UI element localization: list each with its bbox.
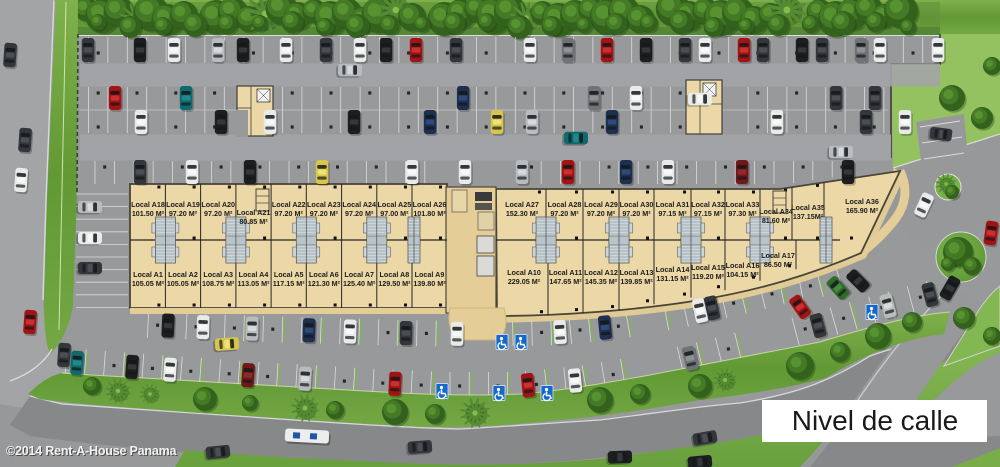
svg-text:Local A27: Local A27 <box>505 200 539 209</box>
svg-text:105.05 M²: 105.05 M² <box>167 279 200 288</box>
svg-text:229.05 M²: 229.05 M² <box>508 277 541 286</box>
svg-text:Nivel de calle: Nivel de calle <box>792 405 959 436</box>
svg-text:Local A32: Local A32 <box>691 200 725 209</box>
svg-text:137.15M²: 137.15M² <box>793 212 824 221</box>
svg-text:121.30 M²: 121.30 M² <box>308 279 341 288</box>
svg-text:97.20 M²: 97.20 M² <box>587 209 616 218</box>
svg-text:Local A28: Local A28 <box>548 200 582 209</box>
svg-text:Local A24: Local A24 <box>342 200 376 209</box>
svg-text:97.20 M²: 97.20 M² <box>550 209 579 218</box>
svg-text:97.20 M²: 97.20 M² <box>622 209 651 218</box>
svg-text:97.20 M²: 97.20 M² <box>345 209 374 218</box>
svg-text:165.90 M²: 165.90 M² <box>846 206 879 215</box>
svg-text:97.15 M²: 97.15 M² <box>694 209 723 218</box>
svg-text:97.30 M²: 97.30 M² <box>728 209 757 218</box>
svg-text:97.15 M²: 97.15 M² <box>658 209 687 218</box>
svg-text:113.05 M²: 113.05 M² <box>238 279 271 288</box>
svg-text:81.60 M²: 81.60 M² <box>762 216 791 225</box>
svg-text:125.40 M²: 125.40 M² <box>343 279 376 288</box>
svg-text:80.85 M²: 80.85 M² <box>239 217 268 226</box>
svg-text:Local A7: Local A7 <box>344 270 374 279</box>
svg-text:117.15 M²: 117.15 M² <box>273 279 306 288</box>
svg-text:Local A20: Local A20 <box>201 200 235 209</box>
svg-text:Local A4: Local A4 <box>239 270 269 279</box>
svg-text:Local A17: Local A17 <box>761 251 795 260</box>
svg-text:Local A35: Local A35 <box>791 203 825 212</box>
svg-text:Local A23: Local A23 <box>307 200 341 209</box>
svg-text:Local A11: Local A11 <box>549 268 582 277</box>
svg-text:Local A3: Local A3 <box>203 270 233 279</box>
svg-text:Local A14: Local A14 <box>656 265 690 274</box>
svg-text:Local A31: Local A31 <box>656 200 690 209</box>
svg-text:101.50 M²: 101.50 M² <box>132 209 165 218</box>
svg-text:Local A19: Local A19 <box>166 200 200 209</box>
svg-text:Local A16: Local A16 <box>726 261 760 270</box>
svg-text:119.20 M²: 119.20 M² <box>692 272 725 281</box>
svg-text:147.65 M²: 147.65 M² <box>549 277 582 286</box>
svg-text:Local A5: Local A5 <box>274 270 304 279</box>
svg-text:Local A21: Local A21 <box>237 208 271 217</box>
svg-text:97.00 M²: 97.00 M² <box>380 209 409 218</box>
svg-text:Local A22: Local A22 <box>272 200 306 209</box>
svg-text:Local A6: Local A6 <box>309 270 339 279</box>
svg-text:Local A33: Local A33 <box>726 200 760 209</box>
svg-text:Local A36: Local A36 <box>845 197 879 206</box>
svg-text:Local A13: Local A13 <box>620 268 654 277</box>
svg-text:Local A30: Local A30 <box>620 200 654 209</box>
svg-text:108.75 M²: 108.75 M² <box>202 279 235 288</box>
svg-text:97.20 M²: 97.20 M² <box>204 209 233 218</box>
svg-text:86.50 M²: 86.50 M² <box>764 260 793 269</box>
svg-text:Local A2: Local A2 <box>168 270 198 279</box>
svg-text:Local A10: Local A10 <box>507 268 541 277</box>
svg-text:Local A25: Local A25 <box>378 200 412 209</box>
svg-text:97.20 M²: 97.20 M² <box>310 209 339 218</box>
svg-text:Local A1: Local A1 <box>133 270 163 279</box>
svg-text:104.15 M²: 104.15 M² <box>726 270 759 279</box>
svg-text:129.50 M²: 129.50 M² <box>378 279 411 288</box>
svg-text:Local A15: Local A15 <box>691 263 725 272</box>
svg-text:Local A9: Local A9 <box>415 270 445 279</box>
svg-text:105.05 M²: 105.05 M² <box>132 279 165 288</box>
svg-text:Local A26: Local A26 <box>413 200 447 209</box>
svg-text:Local A12: Local A12 <box>584 268 618 277</box>
svg-text:145.35 M²: 145.35 M² <box>585 277 618 286</box>
svg-text:139.85 M²: 139.85 M² <box>620 277 653 286</box>
svg-text:131.15 M²: 131.15 M² <box>656 274 689 283</box>
svg-text:101.80 M²: 101.80 M² <box>413 209 446 218</box>
svg-text:©2014 Rent-A-House Panama: ©2014 Rent-A-House Panama <box>6 444 177 458</box>
svg-text:Local A18: Local A18 <box>131 200 165 209</box>
svg-text:Local A34: Local A34 <box>759 207 793 216</box>
svg-text:Local A29: Local A29 <box>584 200 618 209</box>
svg-text:Local A8: Local A8 <box>380 270 410 279</box>
svg-text:152.30 M²: 152.30 M² <box>506 209 539 218</box>
svg-text:139.80 M²: 139.80 M² <box>413 279 446 288</box>
svg-text:97.20 M²: 97.20 M² <box>275 209 304 218</box>
svg-text:97.20 M²: 97.20 M² <box>169 209 198 218</box>
